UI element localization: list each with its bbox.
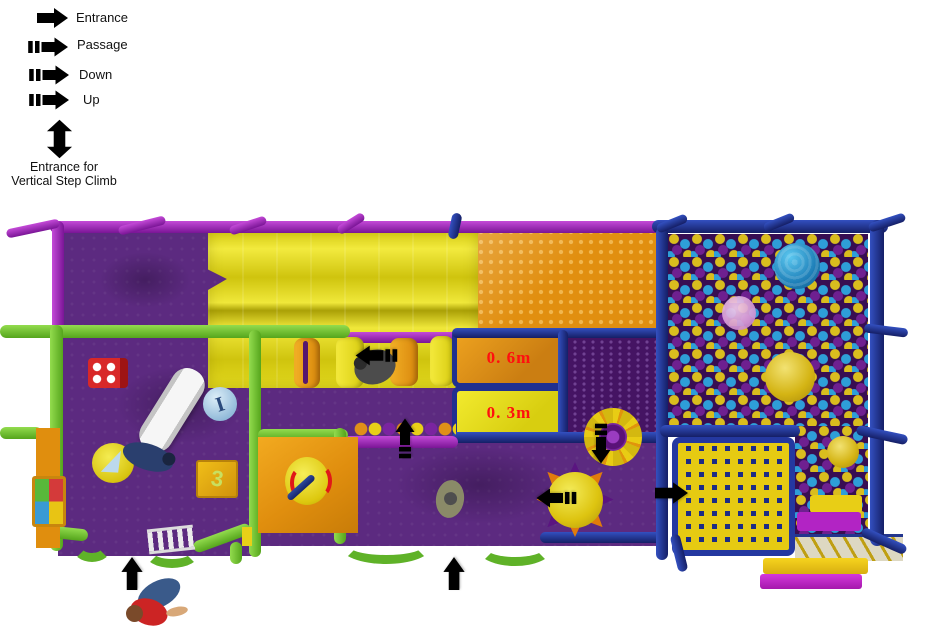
frame-beam-blue — [540, 532, 668, 543]
entrance-arrow-bottom-left — [119, 556, 145, 590]
big-yellow-ball-small — [827, 436, 859, 468]
floor-shadow — [80, 240, 210, 320]
letter-disc-toy: I — [203, 387, 237, 421]
ball-pit — [668, 234, 868, 426]
legend-down-arrow-icon — [28, 64, 71, 86]
person-arm — [165, 605, 188, 618]
disc-letter: I — [212, 391, 228, 417]
legend-down-label: Down — [79, 67, 112, 82]
frame-divider-navy — [656, 227, 668, 560]
person-head — [443, 491, 458, 506]
big-pink-ball — [722, 296, 756, 330]
pad-stripe — [303, 341, 308, 384]
frame-bottom-green-stub — [230, 542, 242, 564]
frame-right-navy — [870, 220, 884, 546]
climb-pad-yellow — [430, 336, 454, 386]
frame-post-blue — [558, 330, 568, 440]
wall-pad-yellow — [242, 527, 252, 546]
entry-step-yellow — [763, 558, 868, 574]
legend-vertical-climb-arrow-icon — [46, 118, 73, 160]
entry-step-magenta — [760, 574, 862, 589]
number-cube-toy: 3 — [196, 460, 238, 498]
climb-pad-orange — [294, 338, 320, 388]
legend-entrance-label: Entrance — [76, 10, 128, 25]
frame-left-purple — [52, 221, 64, 333]
passage-arrow-left — [534, 487, 578, 509]
big-yellow-ball — [765, 352, 815, 402]
legend-passage-label: Passage — [77, 37, 128, 52]
legend-up-arrow-icon — [28, 89, 71, 111]
playground-floor-plan: Entrance Passage Down Up Entrance for Ve… — [0, 0, 950, 632]
platform-height-label: 0. 3m — [487, 403, 532, 423]
frame-pit-divider-navy — [660, 425, 800, 437]
person-head — [126, 605, 143, 622]
crawl-arch-green — [72, 530, 112, 562]
activity-panel — [32, 476, 66, 527]
legend-passage-arrow-icon — [27, 36, 70, 58]
crawl-arch-green — [478, 532, 552, 566]
big-blue-ball — [774, 243, 820, 289]
passage-arrow-up — [394, 416, 416, 460]
up-arrow — [354, 344, 398, 367]
pit-step-magenta — [797, 512, 861, 531]
legend-vertical-climb-label: Entrance for Vertical Step Climb — [0, 160, 128, 188]
legend-up-label: Up — [83, 92, 100, 107]
grid-climb-box — [672, 437, 795, 556]
pit-step-yellow — [810, 495, 862, 513]
cube-digit: 3 — [209, 465, 225, 492]
entrance-arrow-bottom-center — [441, 556, 467, 590]
entrance-arrow-right — [655, 480, 689, 506]
passage-arrow-down — [590, 422, 612, 466]
floor-ladder — [147, 525, 195, 555]
legend: Entrance Passage Down Up Entrance for Ve… — [0, 0, 200, 200]
crawl-arch-green — [340, 528, 432, 564]
soft-dice-toy — [88, 358, 128, 388]
platform-height-label: 0. 6m — [487, 348, 532, 368]
legend-entrance-arrow-icon — [36, 7, 70, 29]
orange-mesh-platform — [477, 228, 657, 334]
